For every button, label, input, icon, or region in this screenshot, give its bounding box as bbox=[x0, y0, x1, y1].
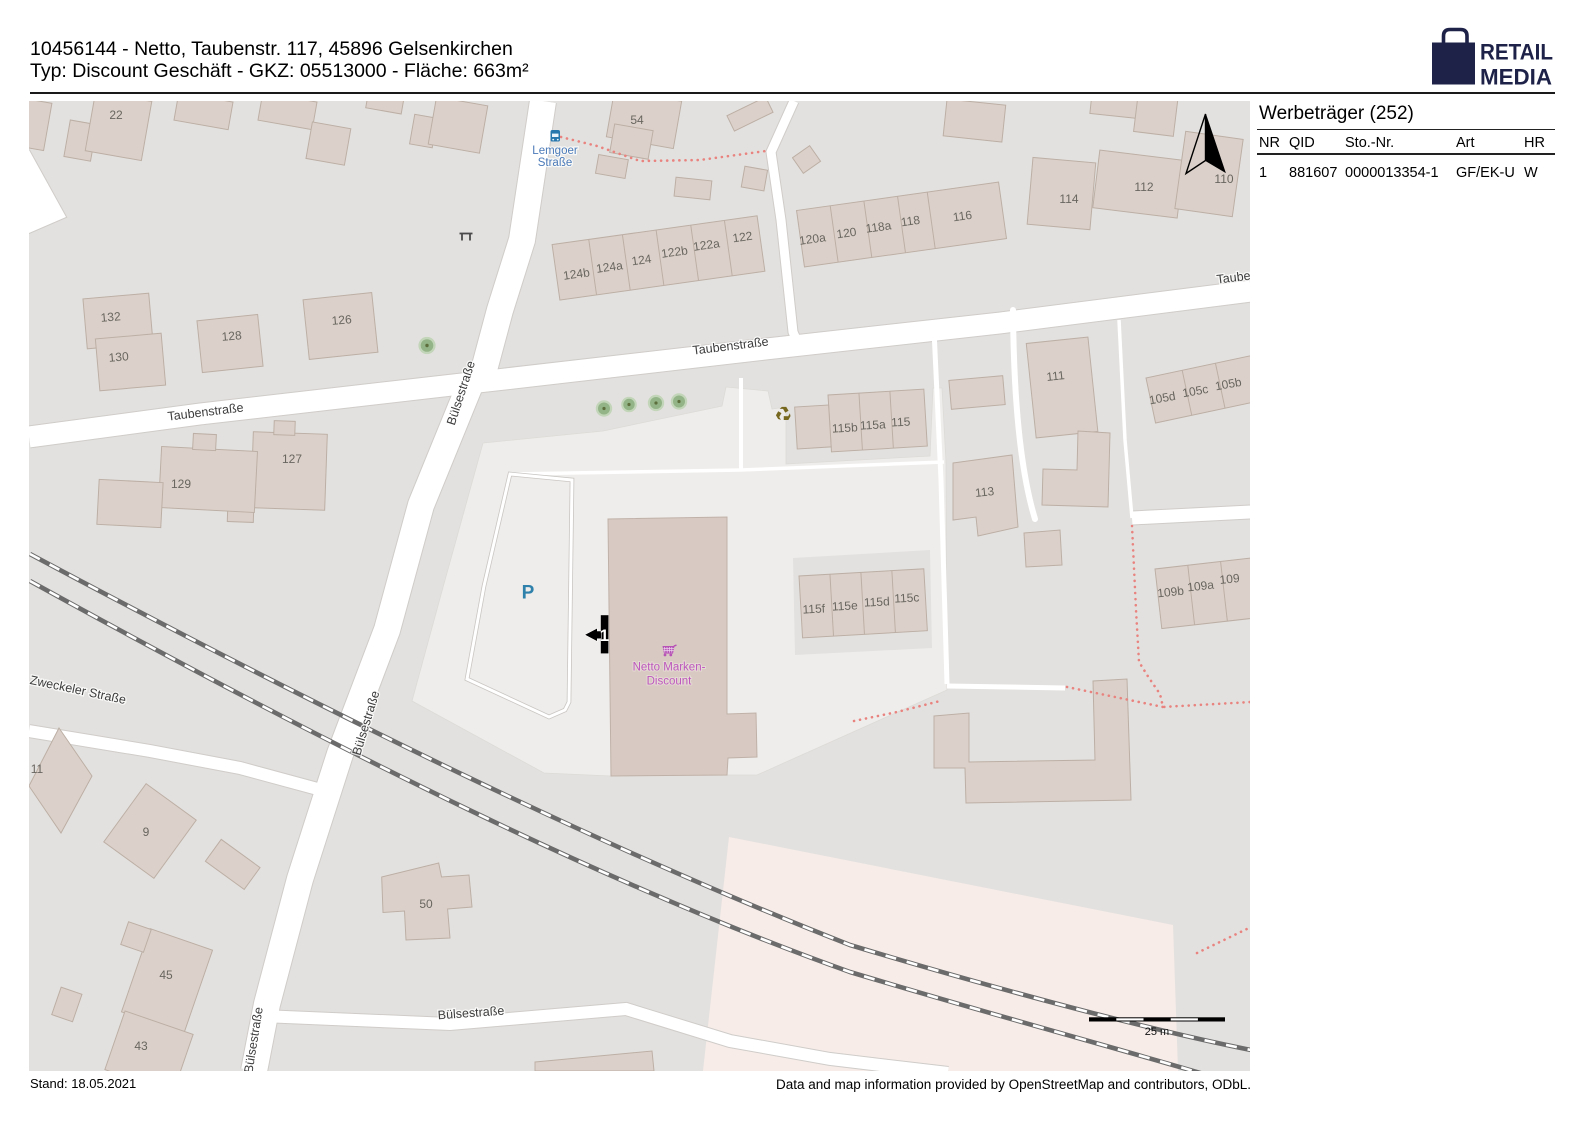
svg-text:115a: 115a bbox=[860, 417, 887, 432]
svg-text:113: 113 bbox=[974, 484, 995, 500]
svg-text:50: 50 bbox=[419, 897, 433, 911]
svg-text:109b: 109b bbox=[1157, 584, 1185, 601]
svg-text:130: 130 bbox=[108, 349, 129, 365]
svg-text:RETAIL: RETAIL bbox=[1480, 39, 1553, 64]
svg-text:115c: 115c bbox=[894, 590, 920, 605]
svg-text:Straße: Straße bbox=[538, 157, 573, 169]
svg-text:127: 127 bbox=[282, 452, 302, 466]
svg-text:124: 124 bbox=[631, 252, 653, 269]
svg-text:P: P bbox=[522, 583, 535, 604]
svg-text:45: 45 bbox=[159, 968, 173, 982]
svg-text:109a: 109a bbox=[1187, 578, 1215, 595]
svg-text:115f: 115f bbox=[802, 601, 826, 616]
svg-text:22: 22 bbox=[109, 108, 123, 122]
svg-text:25 m: 25 m bbox=[1145, 1026, 1169, 1038]
svg-text:Netto Marken-: Netto Marken- bbox=[633, 662, 706, 674]
svg-text:129: 129 bbox=[171, 477, 191, 491]
svg-text:116: 116 bbox=[952, 208, 973, 225]
svg-text:132: 132 bbox=[100, 309, 121, 325]
svg-text:126: 126 bbox=[331, 312, 352, 328]
svg-text:54: 54 bbox=[630, 113, 644, 127]
svg-text:115e: 115e bbox=[832, 598, 859, 613]
svg-text:43: 43 bbox=[134, 1039, 148, 1053]
svg-text:114: 114 bbox=[1059, 192, 1078, 206]
svg-text:1: 1 bbox=[600, 627, 609, 645]
svg-text:118: 118 bbox=[900, 213, 921, 230]
svg-text:MEDIA: MEDIA bbox=[1480, 65, 1552, 90]
svg-text:Discount: Discount bbox=[647, 676, 693, 688]
svg-text:Lemgoer: Lemgoer bbox=[532, 145, 578, 157]
svg-text:128: 128 bbox=[221, 328, 242, 344]
svg-text:122: 122 bbox=[732, 229, 754, 246]
svg-text:115b: 115b bbox=[832, 420, 859, 435]
svg-text:112: 112 bbox=[1134, 180, 1153, 194]
svg-text:110: 110 bbox=[1214, 172, 1233, 186]
svg-text:120: 120 bbox=[836, 225, 858, 242]
svg-text:115: 115 bbox=[891, 414, 911, 429]
svg-text:115d: 115d bbox=[864, 594, 891, 609]
svg-text:111: 111 bbox=[1046, 368, 1066, 384]
svg-text:109: 109 bbox=[1219, 571, 1241, 587]
svg-text:9: 9 bbox=[143, 825, 150, 839]
svg-text:11: 11 bbox=[31, 762, 44, 776]
